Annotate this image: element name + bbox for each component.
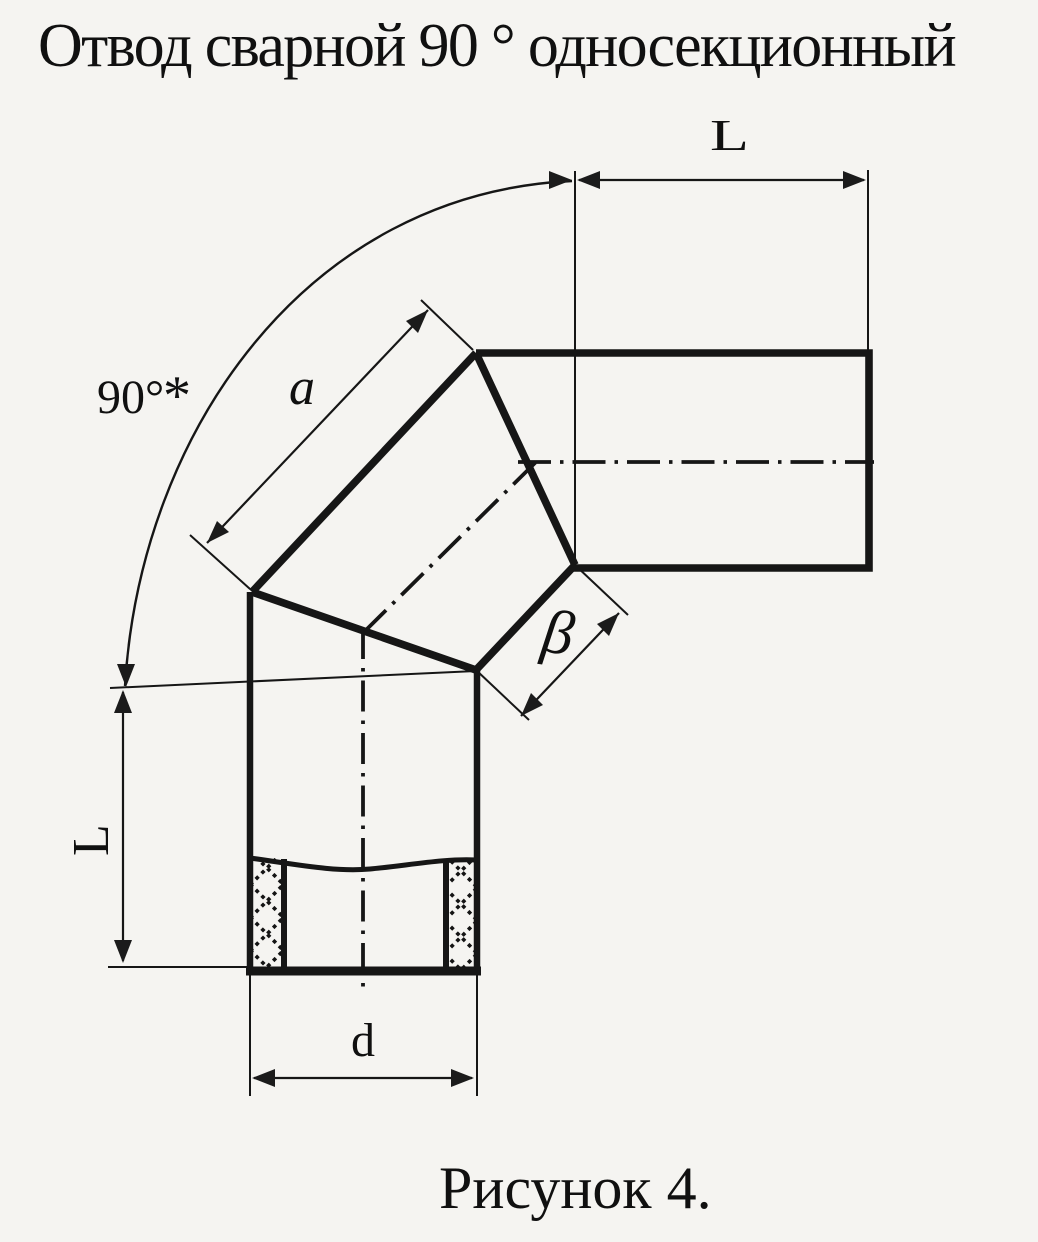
svg-text:d: d <box>351 1014 375 1067</box>
svg-text:L: L <box>63 824 120 856</box>
svg-text:90°: 90° <box>97 371 164 424</box>
svg-text:Отвод сварной 90 ° односекцион: Отвод сварной 90 ° односекционный <box>38 12 955 80</box>
svg-text:Рисунок 4.: Рисунок 4. <box>439 1155 712 1221</box>
svg-text:a: a <box>289 359 315 416</box>
svg-text:*: * <box>163 365 191 427</box>
svg-text:L: L <box>710 111 749 160</box>
